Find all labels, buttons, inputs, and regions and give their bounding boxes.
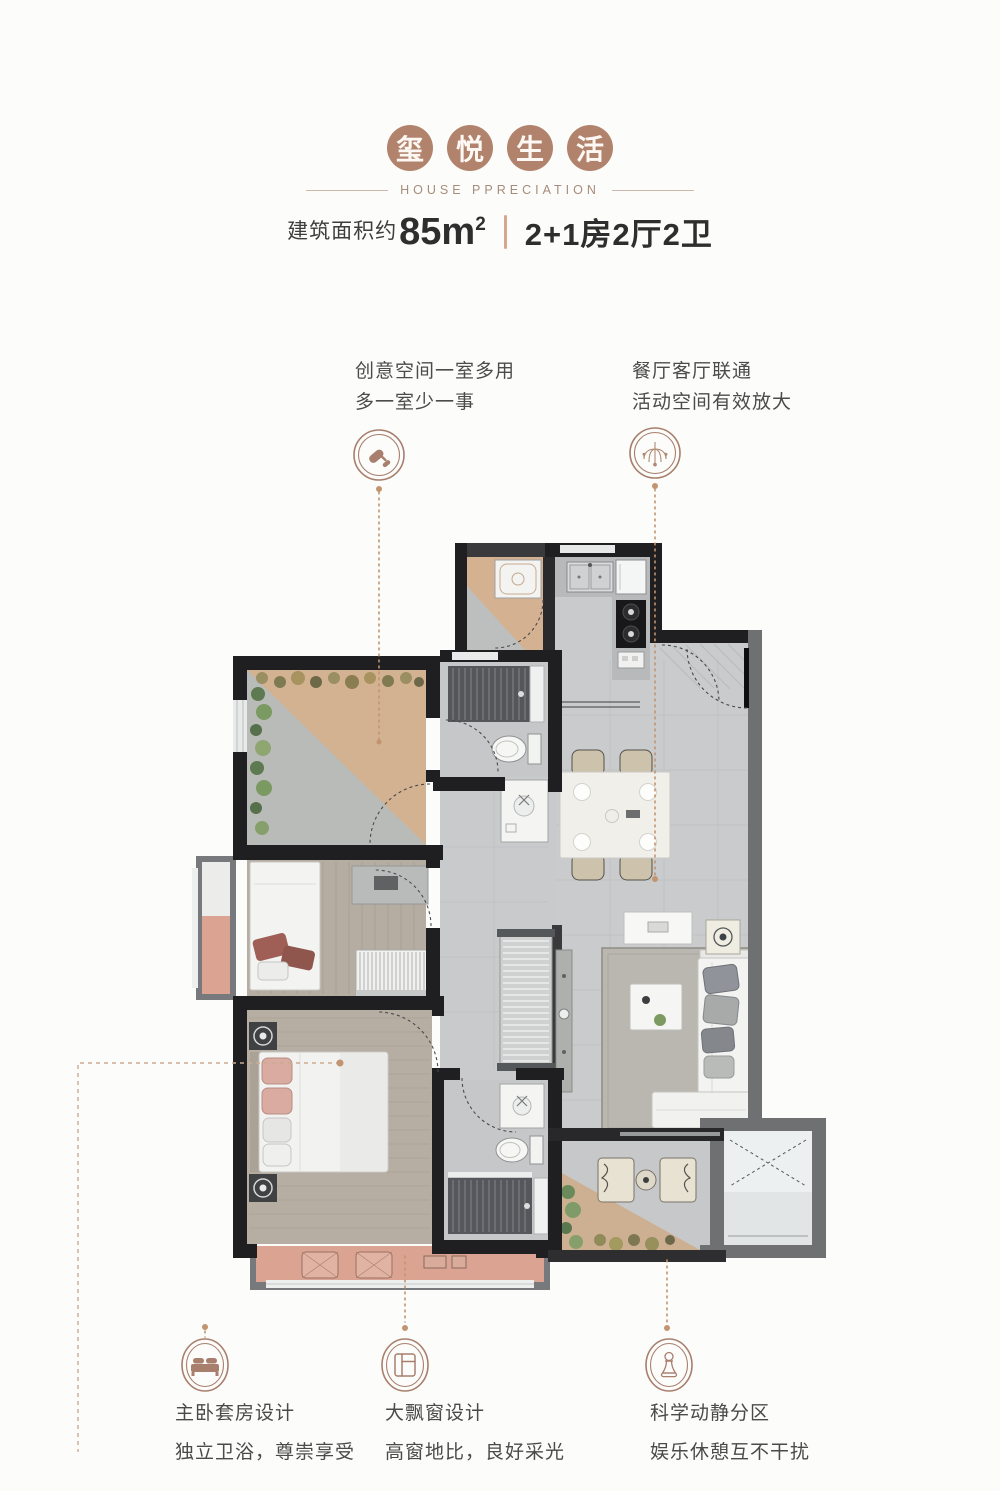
toilet-master [496, 1136, 543, 1164]
single-bed [250, 862, 320, 990]
area-superscript: 2 [475, 214, 486, 235]
double-bed [250, 1052, 388, 1172]
subtitle-line-right [612, 190, 694, 191]
bed-icon [181, 1337, 229, 1393]
chandelier-icon [629, 427, 681, 479]
title-badges: 玺 悦 生 活 [0, 125, 1000, 171]
toilet-guest [492, 734, 541, 764]
layout-value: 2+1房2厅2卫 [525, 219, 713, 250]
area-label: 建筑面积约 [287, 215, 397, 245]
shower-guest [448, 666, 544, 722]
kitchen-sink [567, 562, 613, 592]
title-badge-2: 悦 [447, 125, 493, 171]
bedroom-2 [192, 856, 428, 1000]
area-divider [504, 215, 507, 249]
vanity-master [500, 1084, 544, 1128]
chess-pawn-icon [645, 1337, 693, 1393]
coffee-table [630, 984, 682, 1030]
vanity-guest [501, 780, 548, 842]
balcony [560, 1140, 710, 1251]
subtitle-line-left [306, 190, 388, 191]
plant-stand [706, 920, 740, 954]
bathroom-master [444, 1080, 548, 1240]
pantry-cabinet [495, 560, 541, 598]
bay-window-icon [381, 1337, 429, 1393]
wardrobe [497, 929, 555, 1071]
area-spec-row: 建筑面积约 85m2 2+1房2厅2卫 [0, 203, 1000, 251]
subtitle-row: HOUSE PPRECIATION [0, 183, 1000, 197]
title-badge-1: 玺 [387, 125, 433, 171]
stove [616, 600, 646, 648]
area-value: 85m2 [399, 213, 486, 251]
subtitle-text: HOUSE PPRECIATION [400, 183, 600, 197]
flex-room [247, 670, 426, 845]
paint-roller-icon [353, 429, 405, 481]
hallway [497, 925, 572, 1092]
title-badge-3: 生 [507, 125, 553, 171]
kitchen-cabinet [618, 652, 644, 668]
fridge [616, 560, 646, 594]
cabinet [356, 950, 428, 998]
title-badge-4: 活 [567, 125, 613, 171]
